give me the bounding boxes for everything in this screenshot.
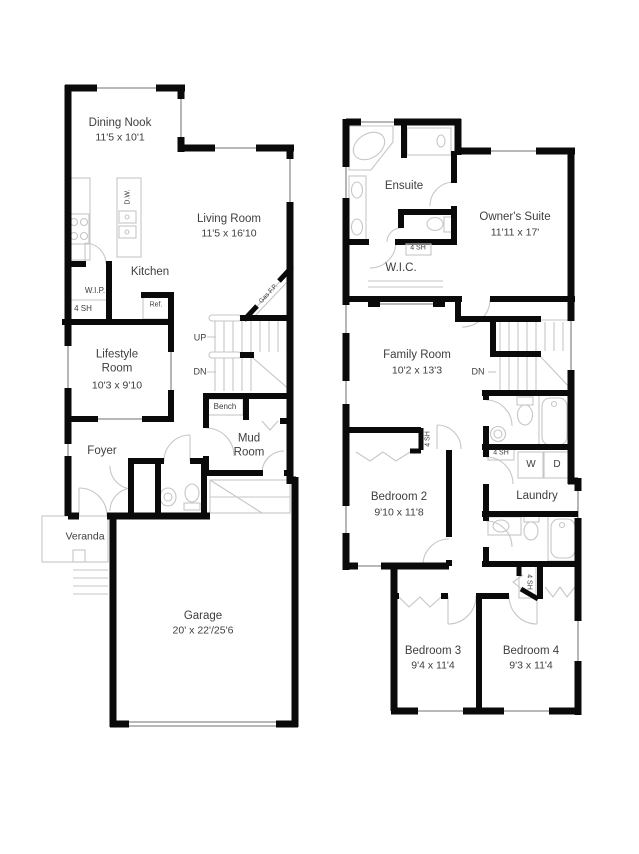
living-room-dims: 11'5 x 16'10 xyxy=(201,227,256,240)
stairs-down-label: DN xyxy=(194,366,207,377)
bedroom4-dims: 9'3 x 11'4 xyxy=(509,659,553,672)
dryer-label: D xyxy=(553,459,560,472)
stairs-up-label: UP xyxy=(194,332,207,343)
pantry-shelf-label: 4 SH xyxy=(74,304,92,314)
laundry-label: Laundry xyxy=(516,489,558,503)
hall-shelf-label: 4 SH xyxy=(524,574,533,590)
foyer-label: Foyer xyxy=(87,444,116,458)
dining-nook-dims: 11'5 x 10'1 xyxy=(95,131,144,144)
room-labels: Dining Nook 11'5 x 10'1 Living Room 11'5… xyxy=(0,0,639,854)
veranda-label: Veranda xyxy=(65,530,104,543)
living-room-label: Living Room xyxy=(197,212,261,226)
owners-suite-dims: 11'11 x 17' xyxy=(491,226,540,239)
stairs-down-label: DN xyxy=(472,366,485,377)
bedroom2-label: Bedroom 2 xyxy=(371,490,427,504)
dishwasher-label: D.W. xyxy=(125,189,134,204)
ensuite-label: Ensuite xyxy=(385,179,423,193)
bedroom2-shelf-label: 4 SH xyxy=(425,431,434,447)
family-room-label: Family Room xyxy=(383,348,451,362)
lifestyle-room-label: Lifestyle Room xyxy=(80,348,154,377)
bedroom4-label: Bedroom 4 xyxy=(503,644,559,658)
washer-label: W xyxy=(526,459,535,472)
bedroom3-label: Bedroom 3 xyxy=(405,644,461,658)
wc-shelf-label: 4 SH xyxy=(410,245,426,254)
fireplace-label: Gas F.P. xyxy=(258,282,280,305)
wic-label: W.I.C. xyxy=(385,261,416,275)
bedroom2-dims: 9'10 x 11'8 xyxy=(374,506,423,519)
lifestyle-room-dims: 10'3 x 9'10 xyxy=(92,379,142,392)
owners-suite-label: Owner's Suite xyxy=(479,210,550,224)
kitchen-label: Kitchen xyxy=(131,265,169,279)
laundry-shelf-label: 4 SH xyxy=(493,450,509,459)
wip-label: W.I.P. xyxy=(85,286,105,296)
family-room-dims: 10'2 x 13'3 xyxy=(392,364,442,377)
bench-label: Bench xyxy=(214,402,237,412)
floor-plan-canvas: Dining Nook 11'5 x 10'1 Living Room 11'5… xyxy=(0,0,639,854)
garage-dims: 20' x 22'/25'6 xyxy=(173,624,234,637)
fridge-label: Ref. xyxy=(150,302,163,311)
mud-room-label: Mud Room xyxy=(221,432,277,461)
bedroom3-dims: 9'4 x 11'4 xyxy=(411,659,455,672)
dining-nook-label: Dining Nook xyxy=(89,116,152,130)
garage-label: Garage xyxy=(184,609,222,623)
